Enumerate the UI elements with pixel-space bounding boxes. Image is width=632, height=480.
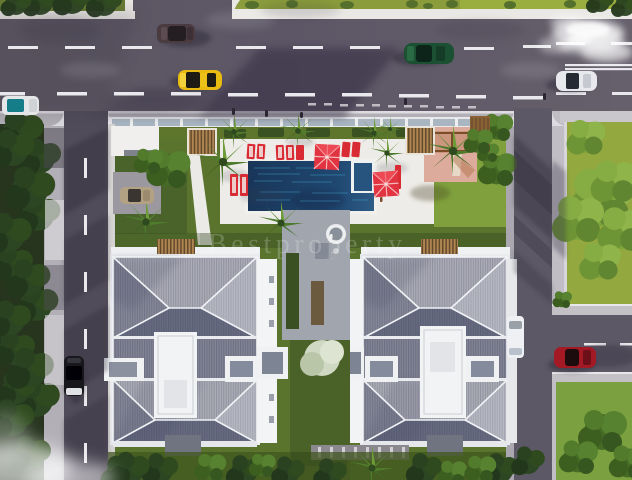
svg-text:Bestproperty: Bestproperty [208, 229, 407, 260]
